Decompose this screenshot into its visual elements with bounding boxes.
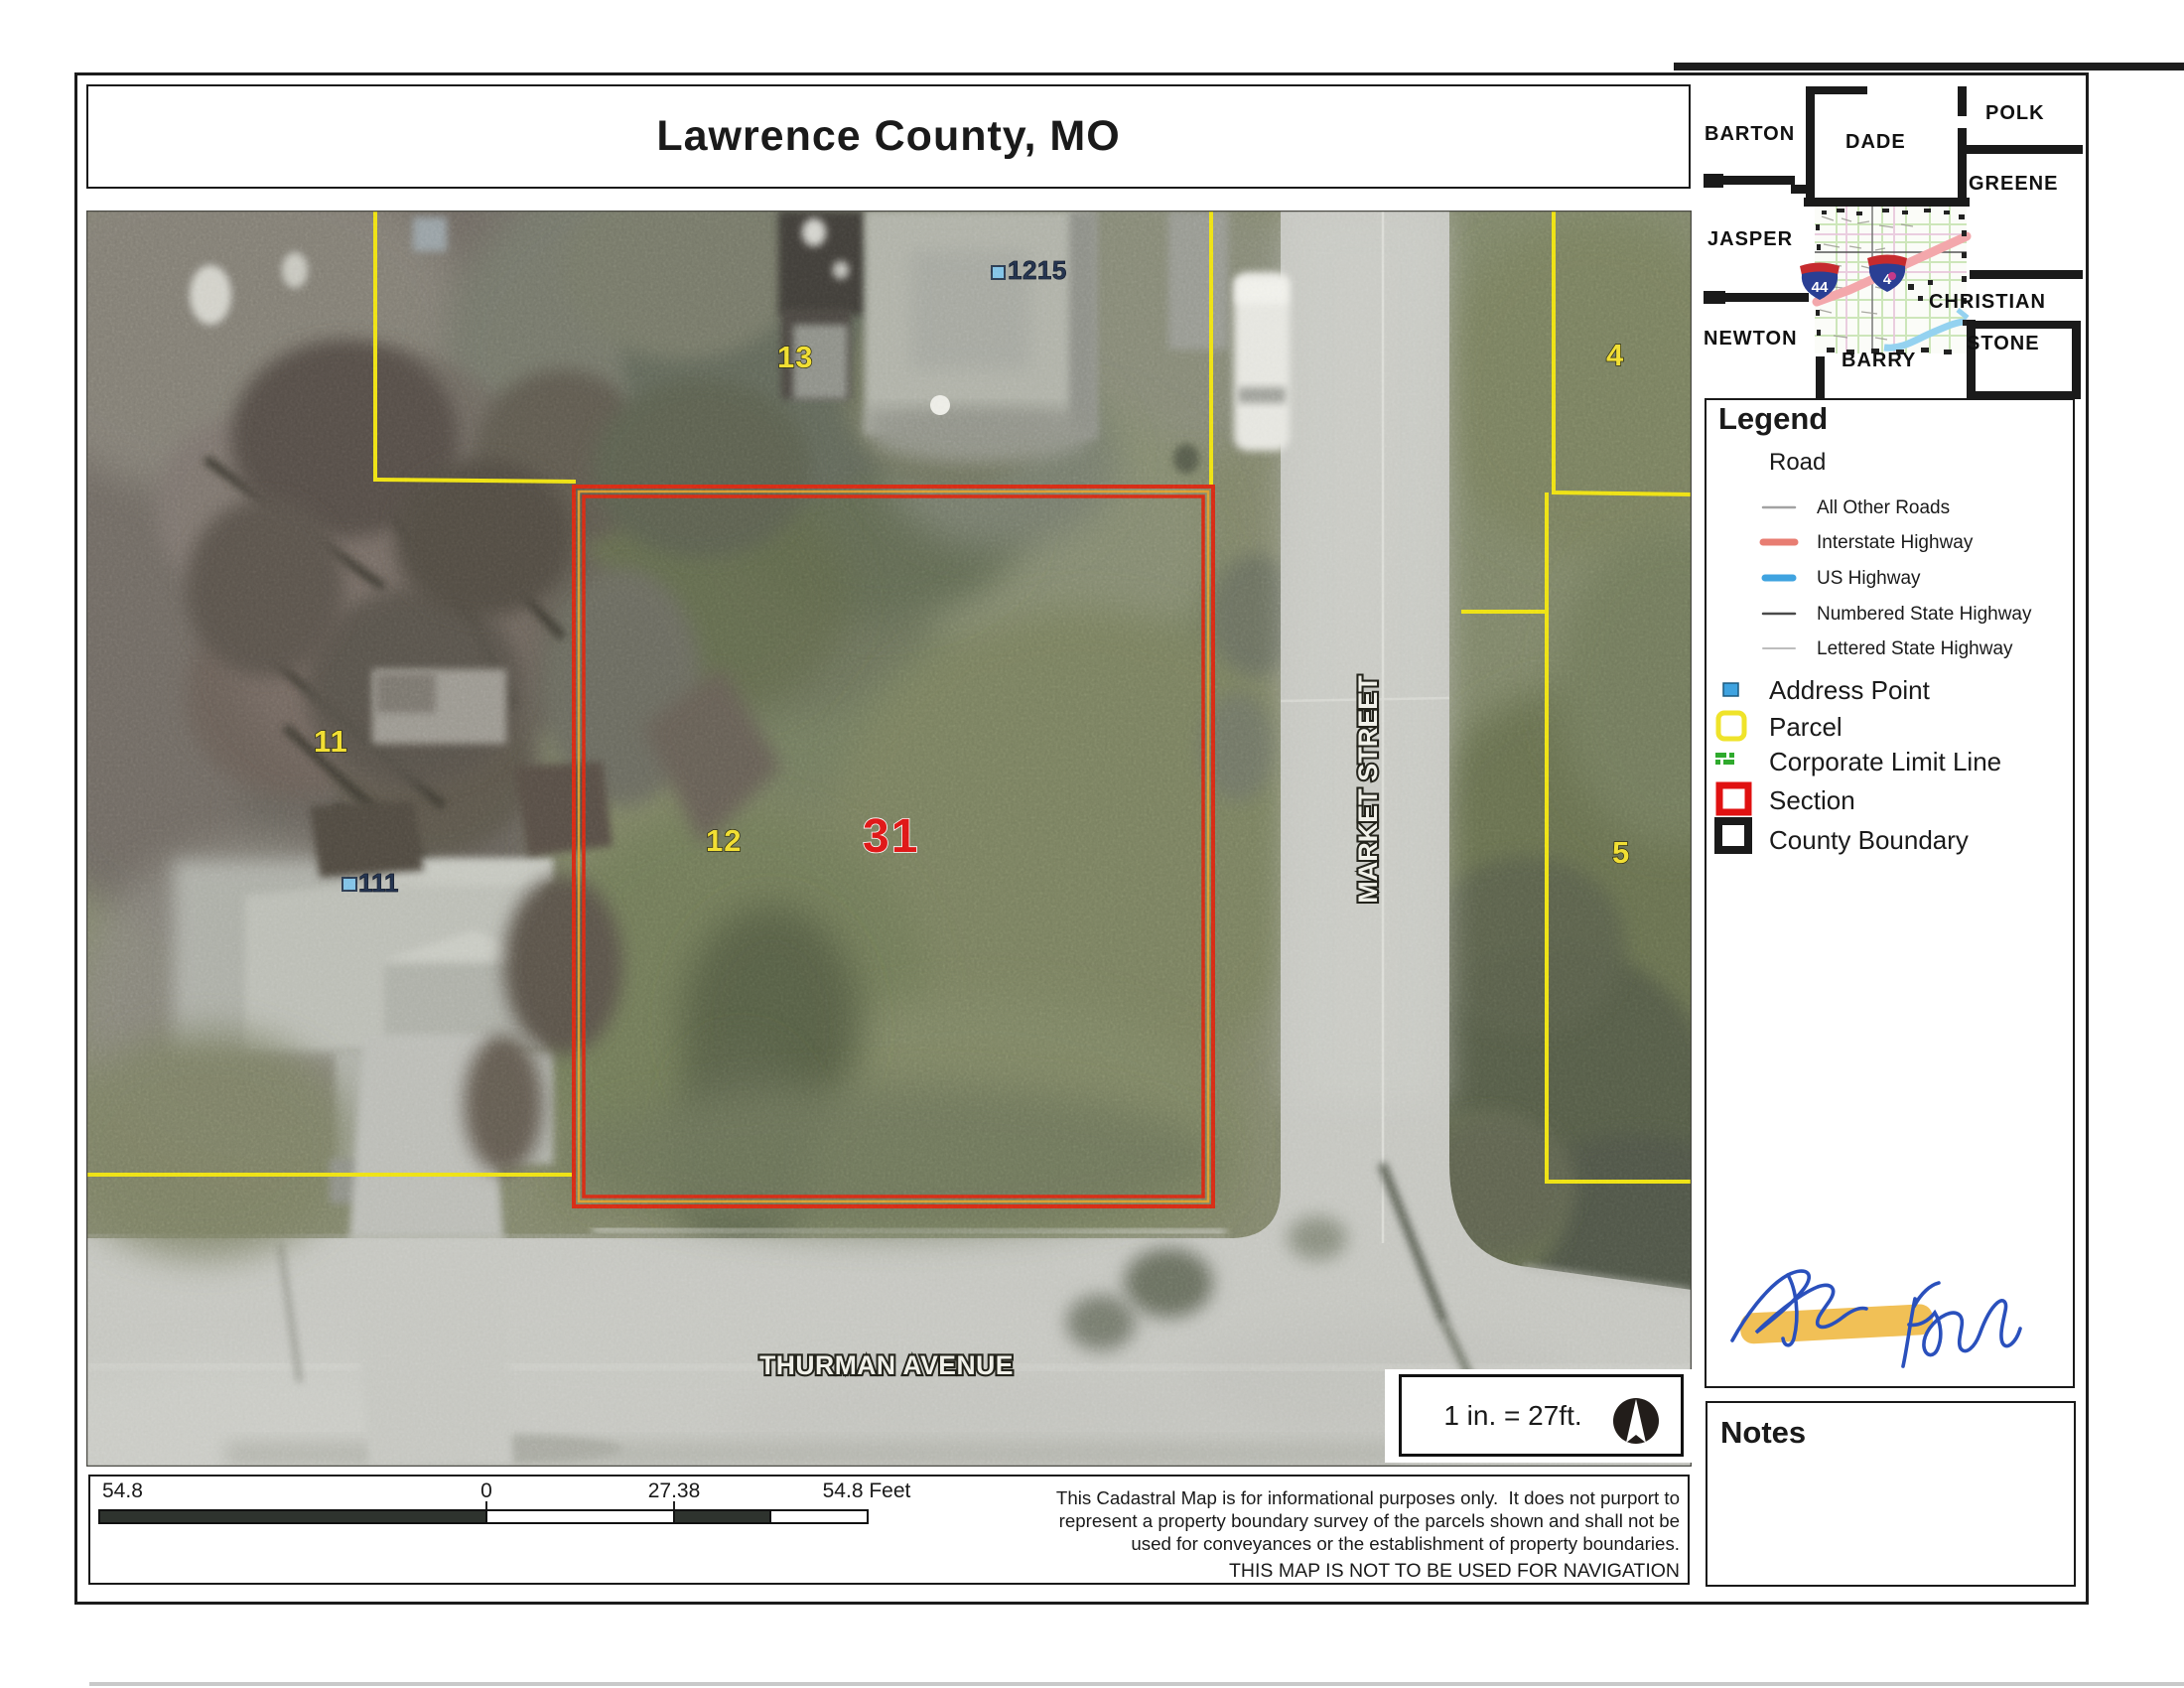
svg-text:NEWTON: NEWTON <box>1704 328 1798 350</box>
svg-text:DADE: DADE <box>1845 131 1906 153</box>
svg-text:POLK: POLK <box>1985 102 2045 124</box>
svg-text:BARRY: BARRY <box>1842 350 1916 371</box>
svg-text:JASPER: JASPER <box>1707 228 1793 250</box>
svg-text:GREENE: GREENE <box>1969 173 2058 195</box>
svg-text:44: 44 <box>1812 279 1829 296</box>
svg-text:BARTON: BARTON <box>1705 123 1795 145</box>
svg-text:CHRISTIAN: CHRISTIAN <box>1929 291 2046 313</box>
svg-text:STONE: STONE <box>1967 333 2040 354</box>
